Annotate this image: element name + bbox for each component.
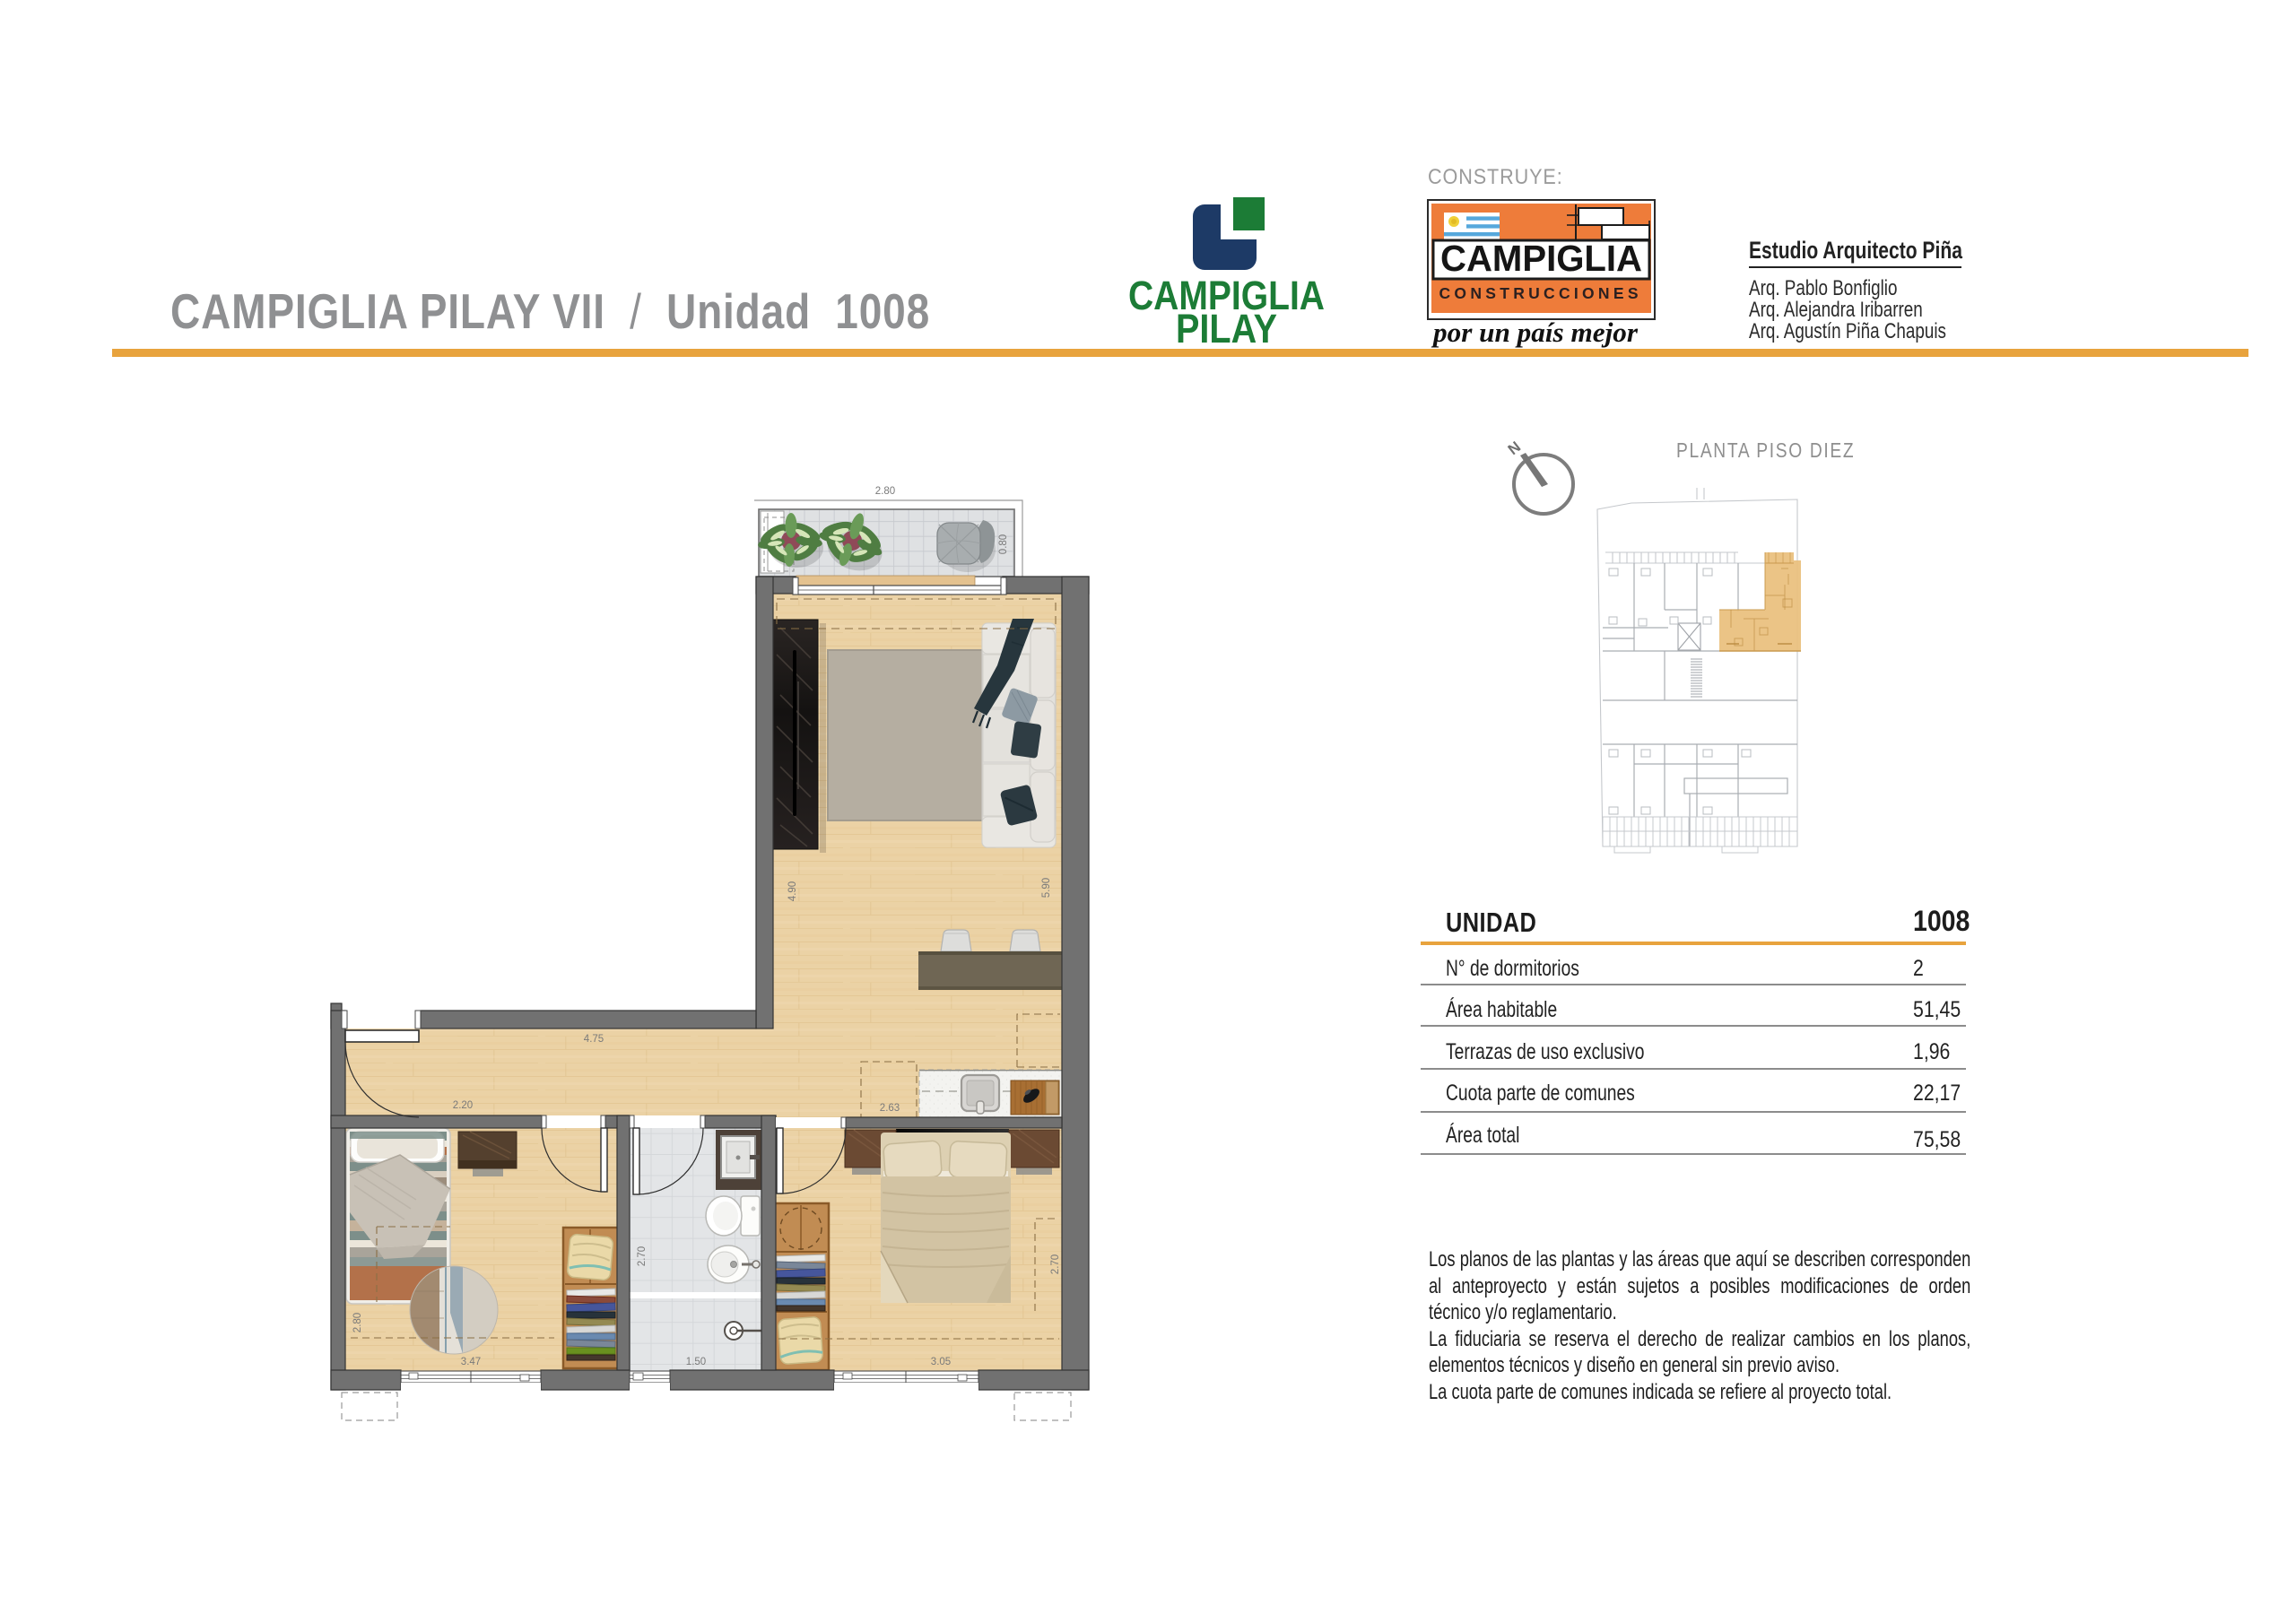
svg-text:0.80: 0.80	[998, 534, 1009, 554]
svg-text:2.80: 2.80	[875, 486, 895, 497]
svg-text:2.63: 2.63	[880, 1103, 900, 1114]
svg-text:3.05: 3.05	[931, 1357, 951, 1367]
svg-text:4.90: 4.90	[787, 881, 798, 901]
svg-text:PILAY: PILAY	[1176, 306, 1277, 352]
svg-text:CONSTRUCCIONES: CONSTRUCCIONES	[1439, 284, 1644, 302]
svg-text:2.80: 2.80	[352, 1313, 363, 1332]
svg-text:2.70: 2.70	[637, 1246, 648, 1266]
svg-text:1.50: 1.50	[686, 1357, 706, 1367]
svg-text:por un país mejor: por un país mejor	[1431, 317, 1639, 348]
svg-text:4.75: 4.75	[584, 1034, 604, 1045]
svg-text:CAMPIGLIA: CAMPIGLIA	[1440, 238, 1642, 279]
svg-text:2.70: 2.70	[1050, 1254, 1061, 1274]
svg-text:2.20: 2.20	[453, 1100, 473, 1111]
svg-text:5.90: 5.90	[1041, 878, 1052, 898]
svg-text:3.47: 3.47	[461, 1357, 481, 1367]
